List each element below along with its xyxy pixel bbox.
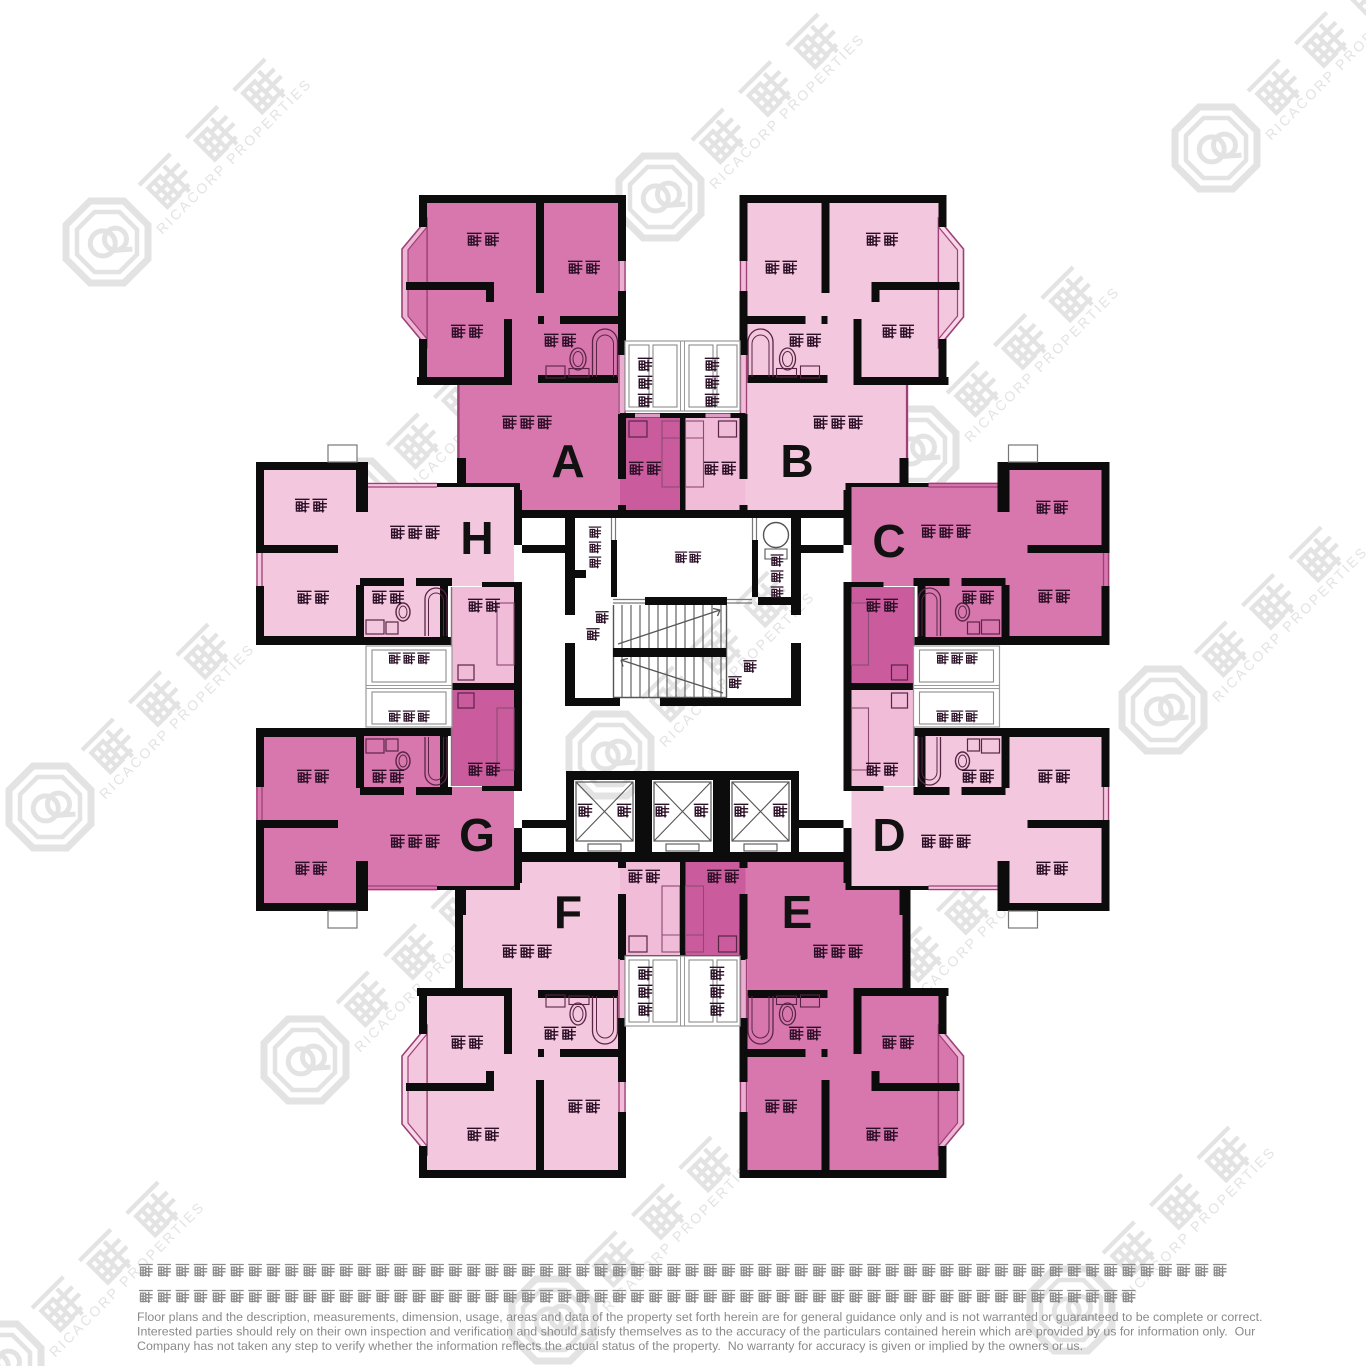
svg-text:C: C <box>872 515 905 567</box>
svg-text:A: A <box>551 435 584 487</box>
svg-text:H: H <box>460 512 493 564</box>
svg-text:G: G <box>459 809 495 861</box>
svg-text:F: F <box>554 886 582 938</box>
svg-text:Company has not taken any step: Company has not taken any step to verify… <box>137 1339 1083 1353</box>
svg-text:Floor plans and the descriptio: Floor plans and the description, measure… <box>137 1310 1262 1324</box>
svg-text:E: E <box>782 886 813 938</box>
svg-text:D: D <box>872 809 905 861</box>
svg-text:B: B <box>780 435 813 487</box>
svg-text:Interested parties should rely: Interested parties should rely on their … <box>137 1325 1255 1339</box>
